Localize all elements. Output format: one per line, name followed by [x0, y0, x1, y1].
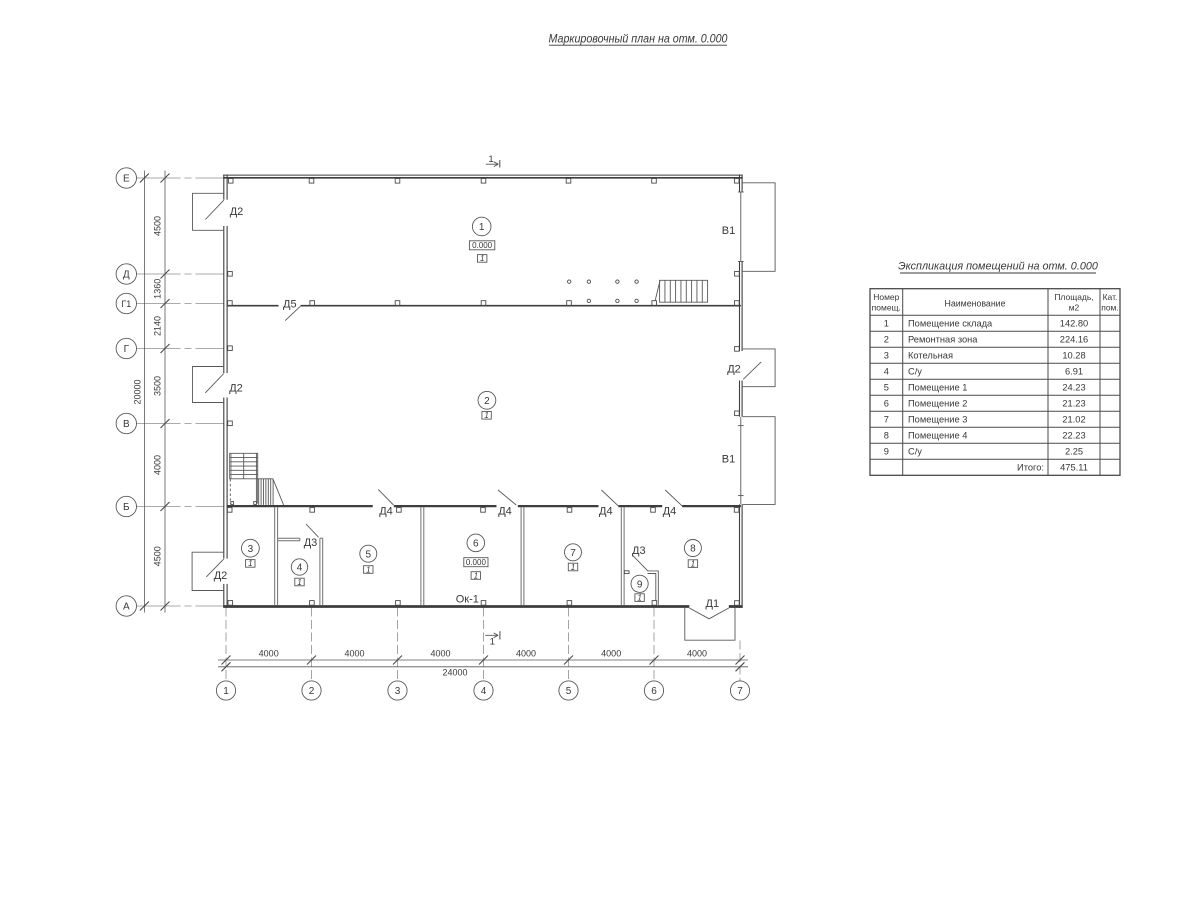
svg-text:224.16: 224.16 — [1060, 335, 1088, 345]
svg-text:1: 1 — [637, 593, 641, 602]
svg-text:Д4: Д4 — [379, 505, 393, 517]
svg-text:4500: 4500 — [153, 546, 163, 566]
svg-text:1: 1 — [248, 559, 252, 568]
svg-text:Площадь,: Площадь, — [1054, 292, 1093, 302]
svg-text:1: 1 — [479, 222, 485, 233]
svg-text:1: 1 — [484, 411, 488, 420]
svg-text:В: В — [123, 419, 130, 430]
svg-text:24000: 24000 — [442, 668, 467, 678]
svg-text:Е: Е — [123, 174, 130, 185]
svg-text:Д4: Д4 — [498, 506, 512, 518]
svg-text:Д5: Д5 — [283, 299, 297, 311]
svg-text:21.02: 21.02 — [1062, 415, 1085, 425]
svg-text:Д4: Д4 — [663, 506, 677, 518]
svg-text:7: 7 — [884, 415, 889, 425]
svg-text:С/у: С/у — [908, 367, 922, 377]
svg-text:Б: Б — [123, 502, 130, 513]
svg-text:8: 8 — [884, 431, 889, 441]
svg-text:4000: 4000 — [687, 649, 707, 659]
svg-text:6: 6 — [651, 686, 657, 697]
svg-text:1: 1 — [474, 571, 478, 580]
svg-text:Ок-1: Ок-1 — [456, 593, 479, 605]
svg-text:10.28: 10.28 — [1062, 351, 1085, 361]
svg-text:3: 3 — [884, 351, 889, 361]
svg-text:Экспликация помещений на отм.: Экспликация помещений на отм. 0.000 — [898, 261, 1098, 273]
svg-text:Г: Г — [124, 344, 130, 355]
svg-text:1: 1 — [480, 254, 484, 263]
svg-text:Д3: Д3 — [304, 537, 318, 549]
svg-text:С/у: С/у — [908, 447, 922, 457]
svg-text:3: 3 — [395, 686, 401, 697]
svg-text:4: 4 — [884, 367, 889, 377]
svg-text:1: 1 — [884, 319, 889, 329]
svg-text:4000: 4000 — [516, 649, 536, 659]
svg-text:Ремонтная зона: Ремонтная зона — [908, 335, 978, 345]
svg-text:22.23: 22.23 — [1062, 431, 1085, 441]
svg-text:Кат.: Кат. — [1103, 292, 1118, 302]
svg-text:4500: 4500 — [153, 216, 163, 236]
svg-text:Маркировочный план на отм. 0.0: Маркировочный план на отм. 0.000 — [549, 31, 728, 45]
svg-text:В1: В1 — [722, 225, 735, 237]
svg-text:Д2: Д2 — [727, 364, 741, 376]
svg-text:4: 4 — [481, 686, 487, 697]
svg-text:Д2: Д2 — [214, 570, 228, 582]
svg-text:4000: 4000 — [344, 649, 364, 659]
svg-text:475.11: 475.11 — [1060, 463, 1088, 473]
svg-text:В1: В1 — [722, 454, 735, 466]
svg-text:2: 2 — [309, 686, 315, 697]
svg-text:Д2: Д2 — [230, 206, 244, 218]
svg-text:5: 5 — [884, 383, 889, 393]
svg-text:0.000: 0.000 — [472, 241, 493, 250]
svg-text:А: А — [123, 602, 130, 613]
svg-text:4000: 4000 — [430, 649, 450, 659]
svg-text:Помещение 4: Помещение 4 — [908, 431, 967, 441]
svg-text:Д: Д — [123, 270, 130, 281]
svg-text:5: 5 — [366, 549, 372, 560]
svg-text:Помещение 2: Помещение 2 — [908, 399, 967, 409]
svg-text:3500: 3500 — [153, 376, 163, 396]
svg-text:1: 1 — [490, 637, 495, 648]
svg-text:2.25: 2.25 — [1065, 447, 1083, 457]
svg-text:пом.: пом. — [1101, 303, 1119, 313]
svg-text:Помещение склада: Помещение склада — [908, 319, 993, 329]
svg-text:Котельная: Котельная — [908, 351, 953, 361]
svg-text:1: 1 — [297, 578, 301, 587]
svg-text:2140: 2140 — [153, 316, 163, 336]
svg-text:5: 5 — [566, 686, 572, 697]
svg-text:4000: 4000 — [601, 649, 621, 659]
svg-text:6.91: 6.91 — [1065, 367, 1083, 377]
svg-text:6: 6 — [884, 399, 889, 409]
svg-text:2: 2 — [884, 335, 889, 345]
svg-text:6: 6 — [473, 539, 479, 550]
svg-text:7: 7 — [570, 548, 576, 559]
svg-text:9: 9 — [884, 447, 889, 457]
svg-text:0.000: 0.000 — [466, 558, 487, 567]
svg-text:1: 1 — [571, 563, 575, 572]
svg-text:Д1: Д1 — [706, 598, 720, 610]
svg-text:7: 7 — [737, 686, 743, 697]
svg-text:24.23: 24.23 — [1062, 383, 1085, 393]
svg-text:Номер: Номер — [873, 292, 899, 302]
svg-text:9: 9 — [637, 579, 643, 590]
svg-text:3: 3 — [248, 544, 254, 555]
svg-text:2: 2 — [484, 396, 490, 407]
svg-text:4000: 4000 — [259, 649, 279, 659]
svg-text:помещ.: помещ. — [872, 303, 901, 313]
svg-text:21.23: 21.23 — [1062, 399, 1085, 409]
svg-text:Помещение 1: Помещение 1 — [908, 383, 967, 393]
svg-text:142.80: 142.80 — [1060, 319, 1088, 329]
svg-text:1: 1 — [366, 565, 370, 574]
svg-text:1: 1 — [223, 686, 229, 697]
svg-text:м2: м2 — [1069, 303, 1080, 313]
svg-text:1: 1 — [691, 559, 695, 568]
svg-text:Наименование: Наименование — [945, 299, 1006, 309]
svg-text:Г1: Г1 — [121, 299, 131, 309]
svg-text:1: 1 — [488, 154, 493, 165]
svg-text:4: 4 — [297, 563, 303, 574]
svg-text:Итого:: Итого: — [1017, 463, 1044, 473]
svg-text:Помещение 3: Помещение 3 — [908, 415, 967, 425]
svg-text:20000: 20000 — [133, 379, 143, 404]
svg-text:Д3: Д3 — [632, 545, 646, 557]
svg-text:1360: 1360 — [153, 279, 163, 299]
svg-text:Д4: Д4 — [599, 506, 613, 518]
svg-text:8: 8 — [690, 544, 696, 555]
svg-text:4000: 4000 — [153, 455, 163, 475]
svg-text:Д2: Д2 — [229, 383, 243, 395]
